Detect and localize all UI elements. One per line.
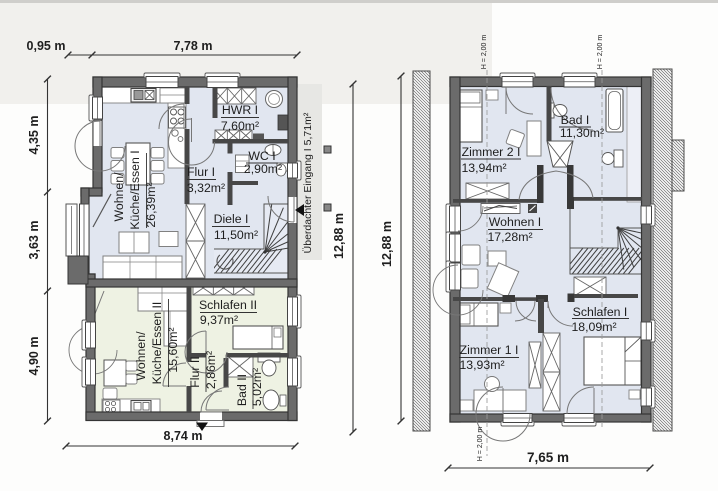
svg-text:11,30m²: 11,30m² [560, 126, 604, 140]
svg-text:4,35 m: 4,35 m [27, 116, 41, 155]
svg-text:15,60m²: 15,60m² [166, 327, 180, 372]
svg-text:Küche/Essen II: Küche/Essen II [150, 302, 164, 385]
svg-text:12,88 m: 12,88 m [380, 221, 394, 267]
svg-text:Wohnen I: Wohnen I [489, 215, 541, 229]
svg-text:Schlafen I: Schlafen I [573, 305, 628, 319]
svg-text:Schlafen II: Schlafen II [199, 298, 257, 312]
svg-text:2,90m²: 2,90m² [244, 162, 282, 176]
svg-text:H = 2,00 m: H = 2,00 m [597, 35, 604, 70]
svg-text:Wohnen/: Wohnen/ [134, 331, 148, 381]
svg-text:Küche/Essen I: Küche/Essen I [128, 150, 142, 229]
svg-text:H = 2,00 m: H = 2,00 m [481, 35, 488, 70]
svg-text:26,39m²: 26,39m² [144, 182, 158, 227]
svg-text:2,86m²: 2,86m² [204, 351, 218, 389]
svg-text:17,28m²: 17,28m² [487, 230, 532, 244]
svg-text:Flur I: Flur I [187, 165, 215, 179]
svg-text:9,37m²: 9,37m² [200, 313, 238, 327]
svg-text:11,50m²: 11,50m² [214, 228, 258, 242]
svg-text:WC I: WC I [248, 149, 275, 163]
svg-text:4,90 m: 4,90 m [27, 337, 41, 376]
svg-text:Zimmer 2 I: Zimmer 2 I [462, 145, 521, 159]
svg-text:13,94m²: 13,94m² [461, 161, 506, 175]
svg-text:7,78 m: 7,78 m [174, 39, 213, 53]
svg-text:Diele I: Diele I [214, 212, 249, 226]
svg-text:Bad I: Bad I [561, 113, 590, 127]
svg-text:18,09m²: 18,09m² [571, 320, 616, 334]
svg-text:Überdachter Eingang I 5,71m²: Überdachter Eingang I 5,71m² [302, 112, 314, 253]
svg-text:12,88 m: 12,88 m [332, 213, 346, 259]
svg-text:8,74 m: 8,74 m [164, 429, 203, 443]
svg-text:Bad II: Bad II [235, 374, 249, 406]
svg-text:Wohnen/: Wohnen/ [112, 172, 126, 222]
svg-text:13,93m²: 13,93m² [459, 358, 504, 372]
svg-text:3,63 m: 3,63 m [27, 221, 41, 260]
svg-text:H = 2,00 m: H = 2,00 m [477, 427, 484, 462]
svg-text:Zimmer 1 I: Zimmer 1 I [460, 343, 519, 357]
svg-text:7,60m²: 7,60m² [221, 119, 259, 133]
svg-text:HWR I: HWR I [222, 103, 258, 117]
svg-text:Flur II: Flur II [188, 356, 202, 387]
svg-text:7,65 m: 7,65 m [527, 450, 569, 465]
svg-text:0,95 m: 0,95 m [27, 39, 66, 53]
svg-text:3,32m²: 3,32m² [187, 181, 225, 195]
svg-text:5,02m²: 5,02m² [250, 368, 264, 406]
